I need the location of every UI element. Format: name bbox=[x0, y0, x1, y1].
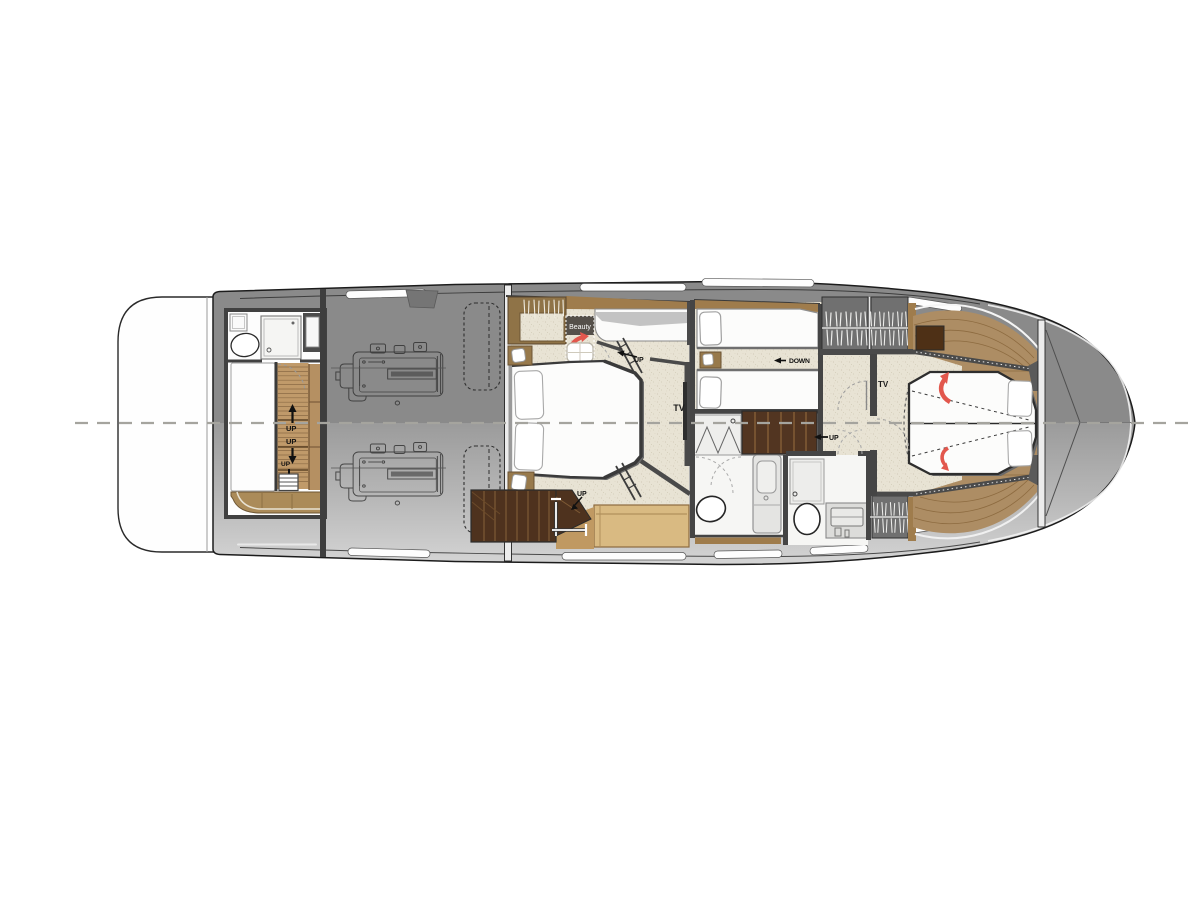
svg-text:Beauty: Beauty bbox=[569, 324, 591, 331]
svg-text:UP: UP bbox=[634, 357, 644, 364]
svg-text:UP: UP bbox=[281, 461, 291, 468]
svg-text:UP: UP bbox=[286, 424, 296, 433]
svg-text:DOWN: DOWN bbox=[789, 358, 810, 365]
svg-text:UP: UP bbox=[577, 491, 587, 498]
svg-text:UP: UP bbox=[829, 435, 839, 442]
svg-text:UP: UP bbox=[286, 437, 296, 446]
svg-text:TV: TV bbox=[878, 380, 889, 389]
svg-text:TV: TV bbox=[673, 403, 685, 413]
